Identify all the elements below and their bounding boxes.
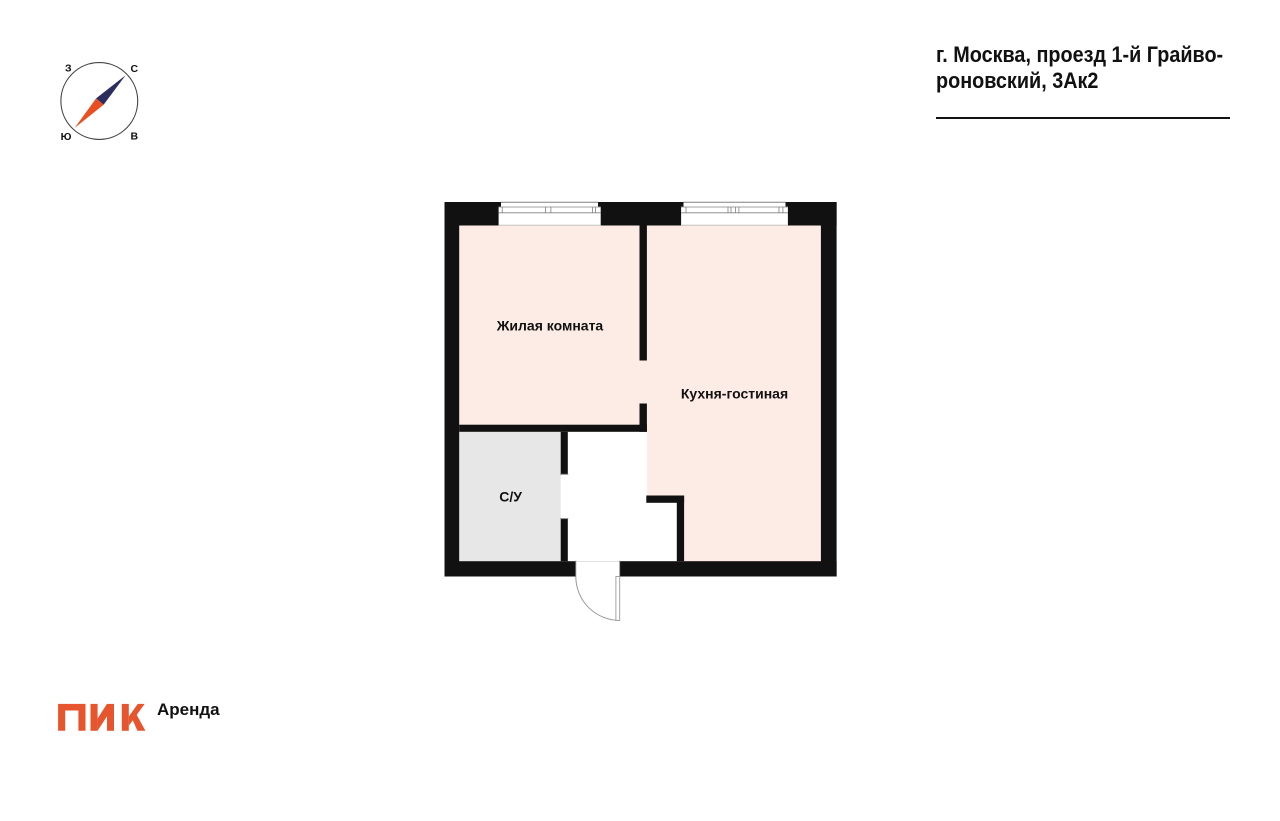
- svg-text:Жилая комната: Жилая комната: [496, 318, 604, 334]
- svg-text:С: С: [131, 63, 139, 75]
- svg-text:Ю: Ю: [61, 131, 72, 143]
- svg-text:С/У: С/У: [499, 488, 522, 504]
- svg-text:З: З: [65, 63, 72, 75]
- svg-text:Кухня-гостиная: Кухня-гостиная: [681, 385, 788, 401]
- svg-text:В: В: [131, 130, 139, 142]
